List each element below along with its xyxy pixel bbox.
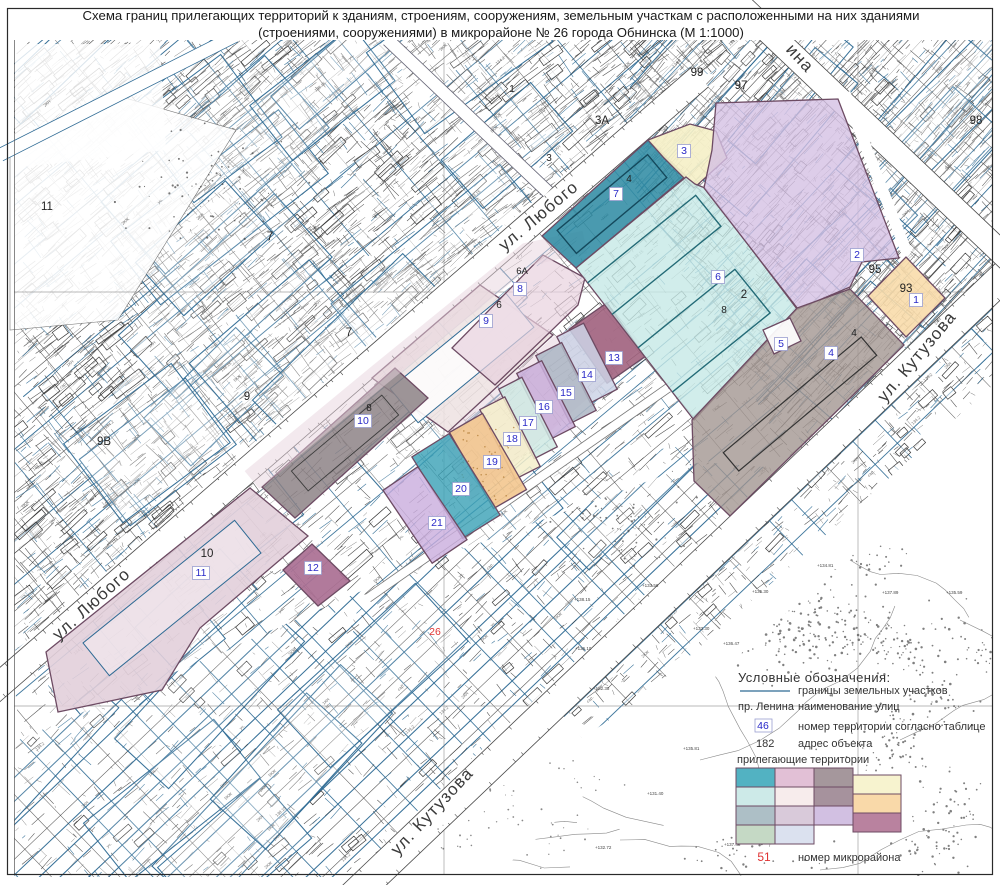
svg-text:+135.81: +135.81	[683, 746, 700, 751]
svg-text:+132.38: +132.38	[593, 686, 610, 691]
svg-text:+135.30: +135.30	[752, 589, 769, 594]
svg-text:11: 11	[41, 201, 53, 213]
svg-text:+133.30: +133.30	[693, 626, 710, 631]
svg-text:13: 13	[608, 352, 620, 364]
svg-text:6: 6	[496, 300, 502, 311]
svg-text:4: 4	[851, 328, 857, 339]
svg-text:2: 2	[741, 289, 747, 301]
svg-text:10: 10	[201, 548, 214, 560]
svg-text:99: 99	[691, 67, 704, 79]
svg-text:+131.40: +131.40	[647, 791, 664, 796]
svg-text:21: 21	[431, 517, 443, 529]
svg-text:7: 7	[346, 327, 352, 339]
svg-text:Условные обозначения:: Условные обозначения:	[738, 670, 890, 685]
svg-text:номер территории согласно табл: номер территории согласно таблице	[798, 721, 985, 733]
svg-text:2: 2	[854, 249, 860, 261]
svg-text:номер микрорайона: номер микрорайона	[798, 852, 901, 864]
svg-text:11: 11	[196, 567, 207, 579]
svg-text:+137.89: +137.89	[882, 590, 899, 595]
svg-text:наименование улиц: наименование улиц	[798, 701, 900, 713]
svg-text:адрес объекта: адрес объекта	[798, 738, 873, 750]
svg-text:1: 1	[509, 84, 515, 95]
svg-text:6: 6	[715, 271, 721, 283]
svg-text:+136.47: +136.47	[723, 641, 740, 646]
svg-text:границы земельных участков: границы земельных участков	[798, 685, 948, 697]
svg-text:+138.15: +138.15	[574, 597, 591, 602]
svg-text:+133.56: +133.56	[642, 583, 659, 588]
svg-text:+132.72: +132.72	[595, 845, 612, 850]
svg-text:3: 3	[681, 145, 687, 157]
svg-text:18: 18	[506, 433, 518, 445]
svg-text:19: 19	[486, 456, 498, 468]
svg-text:7: 7	[613, 188, 619, 200]
svg-text:(строениями, сооружениями) в м: (строениями, сооружениями) в микрорайоне…	[258, 25, 744, 40]
svg-text:14: 14	[581, 369, 593, 381]
svg-text:97: 97	[735, 80, 748, 92]
svg-text:12: 12	[307, 562, 319, 574]
svg-text:+135.59: +135.59	[946, 590, 963, 595]
svg-text:98: 98	[970, 115, 983, 127]
svg-text:10: 10	[357, 415, 369, 427]
svg-text:20: 20	[455, 483, 467, 495]
svg-text:26: 26	[429, 626, 441, 638]
svg-text:1: 1	[913, 294, 919, 306]
svg-text:182: 182	[756, 738, 774, 750]
svg-text:46: 46	[757, 720, 769, 732]
svg-text:прилегающие территории: прилегающие территории	[737, 754, 869, 766]
svg-text:51: 51	[757, 850, 771, 864]
svg-text:пр. Ленина: пр. Ленина	[738, 701, 795, 713]
svg-text:4: 4	[828, 347, 834, 359]
svg-text:95: 95	[869, 264, 882, 276]
svg-text:6А: 6А	[516, 266, 528, 277]
svg-text:+136.10: +136.10	[575, 646, 592, 651]
svg-text:17: 17	[522, 417, 534, 429]
svg-text:8: 8	[721, 305, 727, 316]
svg-text:+134.81: +134.81	[817, 563, 834, 568]
svg-text:9В: 9В	[97, 436, 111, 448]
svg-text:16: 16	[538, 401, 550, 413]
svg-text:8: 8	[366, 403, 372, 414]
svg-text:3А: 3А	[595, 115, 609, 127]
svg-text:9: 9	[244, 391, 250, 403]
svg-text:Схема границ прилегающих терри: Схема границ прилегающих территорий к зд…	[83, 8, 920, 23]
svg-text:4: 4	[626, 174, 632, 185]
svg-text:5: 5	[778, 338, 784, 350]
svg-text:15: 15	[560, 387, 572, 399]
svg-text:7: 7	[267, 231, 273, 243]
svg-text:3: 3	[546, 153, 552, 164]
svg-text:9: 9	[483, 315, 489, 327]
svg-text:8: 8	[517, 283, 523, 295]
